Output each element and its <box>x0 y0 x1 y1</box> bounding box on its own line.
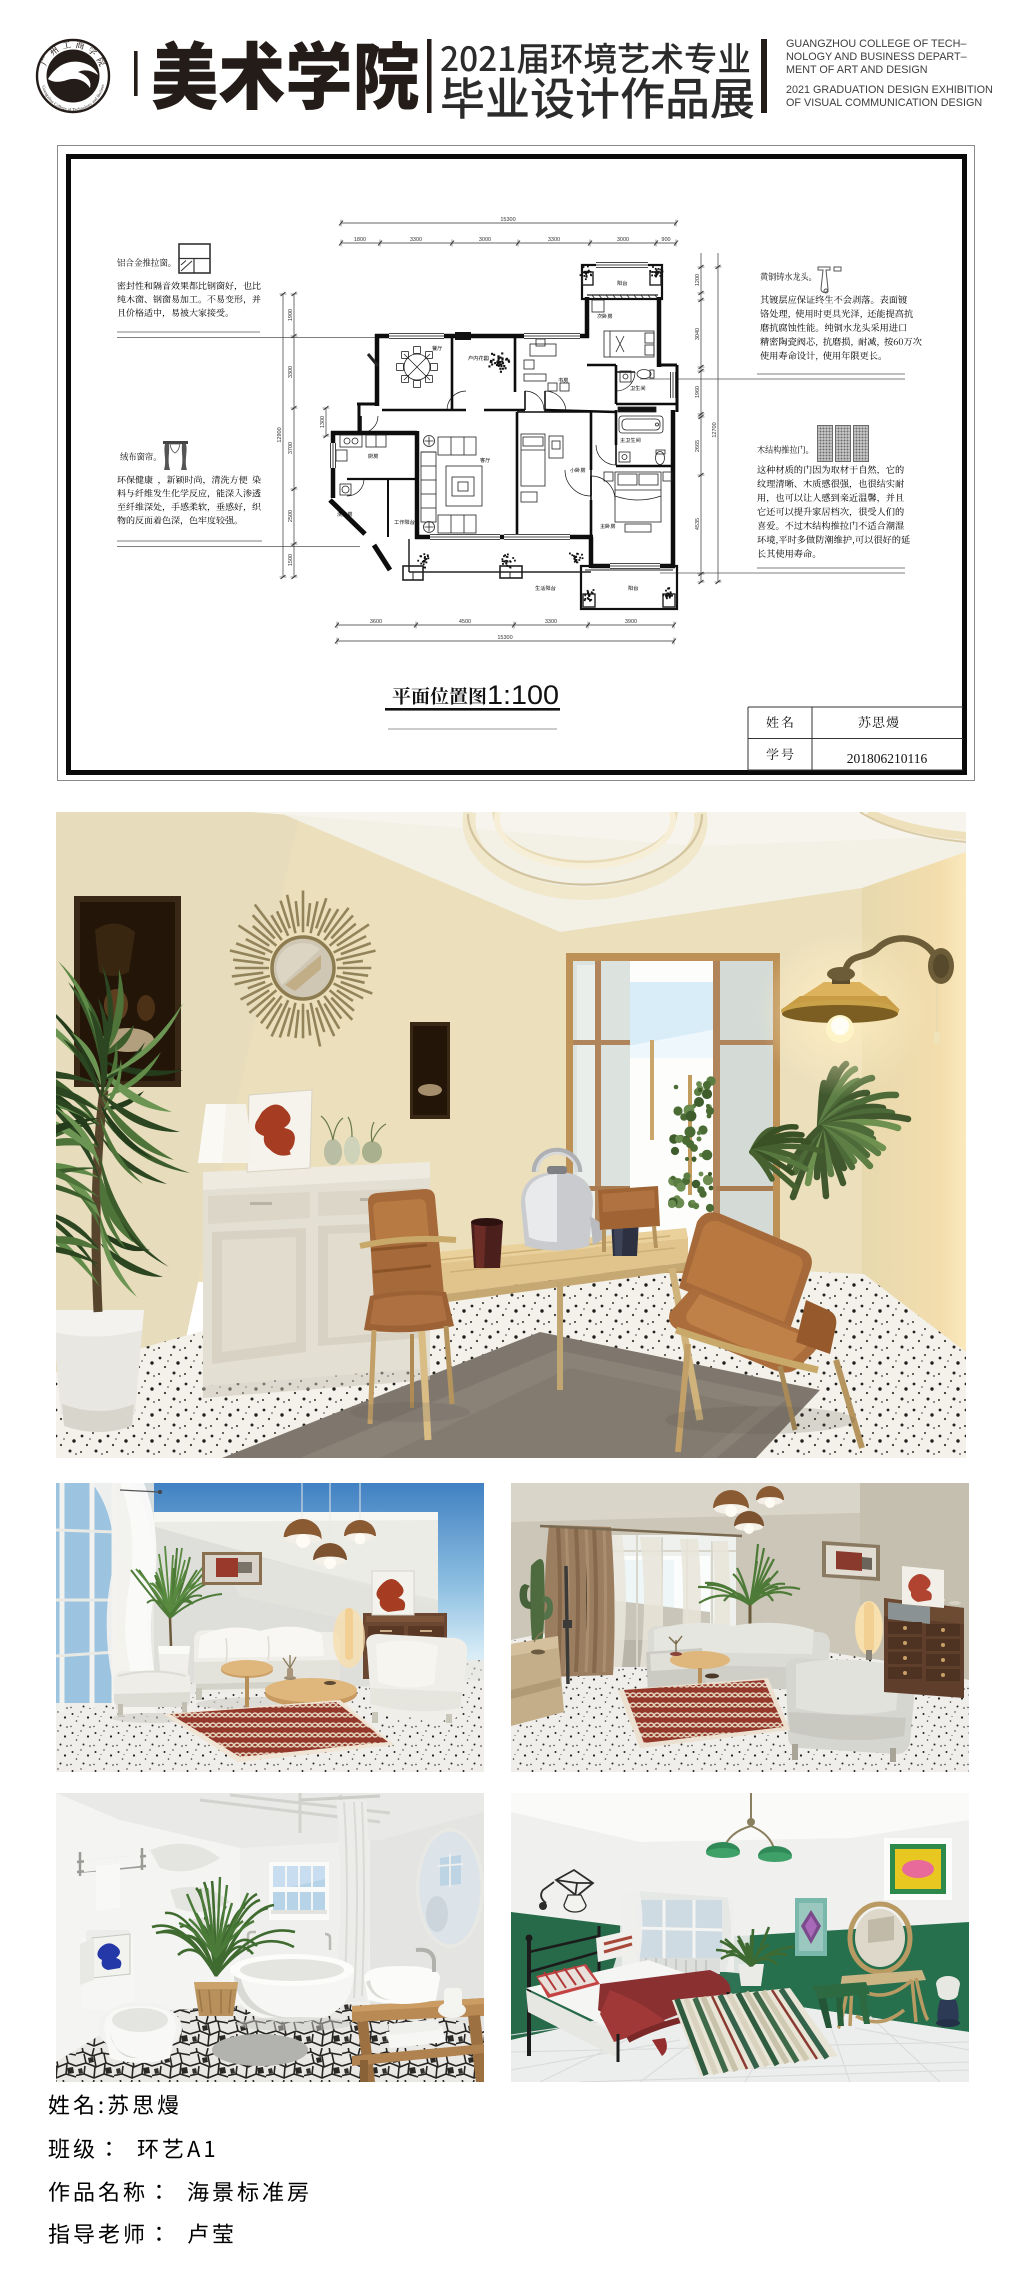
svg-text:1:100: 1:100 <box>487 680 559 710</box>
svg-text:4500: 4500 <box>459 619 471 625</box>
svg-text:4535: 4535 <box>695 518 701 530</box>
svg-text:NOLOGY AND BUSINESS DEPART–: NOLOGY AND BUSINESS DEPART– <box>786 51 967 63</box>
svg-text:1200: 1200 <box>695 274 701 286</box>
svg-text:1900: 1900 <box>288 309 294 321</box>
svg-text:3300: 3300 <box>548 237 560 243</box>
svg-text:900: 900 <box>661 237 670 243</box>
svg-text:1800: 1800 <box>354 237 366 243</box>
svg-text:2665: 2665 <box>695 440 701 452</box>
svg-text:3040: 3040 <box>695 328 701 340</box>
svg-text:3000: 3000 <box>617 237 629 243</box>
svg-text:1960: 1960 <box>695 386 701 398</box>
svg-text:3300: 3300 <box>545 619 557 625</box>
svg-text:3600: 3600 <box>370 619 382 625</box>
svg-text:1300: 1300 <box>320 416 326 428</box>
svg-text:3300: 3300 <box>288 366 294 378</box>
svg-text:15300: 15300 <box>497 635 512 641</box>
svg-text:201806210116: 201806210116 <box>847 751 928 766</box>
svg-text:3900: 3900 <box>625 619 637 625</box>
svg-text:3700: 3700 <box>288 442 294 454</box>
svg-text:OF VISUAL COMMUNICATION DESIGN: OF VISUAL COMMUNICATION DESIGN <box>786 97 982 109</box>
svg-text:12700: 12700 <box>712 422 718 437</box>
svg-text:1500: 1500 <box>288 554 294 566</box>
svg-text:12900: 12900 <box>277 427 283 442</box>
svg-text:MENT OF ART AND DESIGN: MENT OF ART AND DESIGN <box>786 64 928 76</box>
svg-text:GUANGZHOU COLLEGE OF TECH–: GUANGZHOU COLLEGE OF TECH– <box>786 38 966 50</box>
svg-text:2021 GRADUATION DESIGN EXHIBIT: 2021 GRADUATION DESIGN EXHIBITION <box>786 84 993 96</box>
svg-text:3000: 3000 <box>479 237 491 243</box>
svg-text:2500: 2500 <box>288 510 294 522</box>
svg-text:15300: 15300 <box>500 217 515 223</box>
svg-text:3300: 3300 <box>410 237 422 243</box>
